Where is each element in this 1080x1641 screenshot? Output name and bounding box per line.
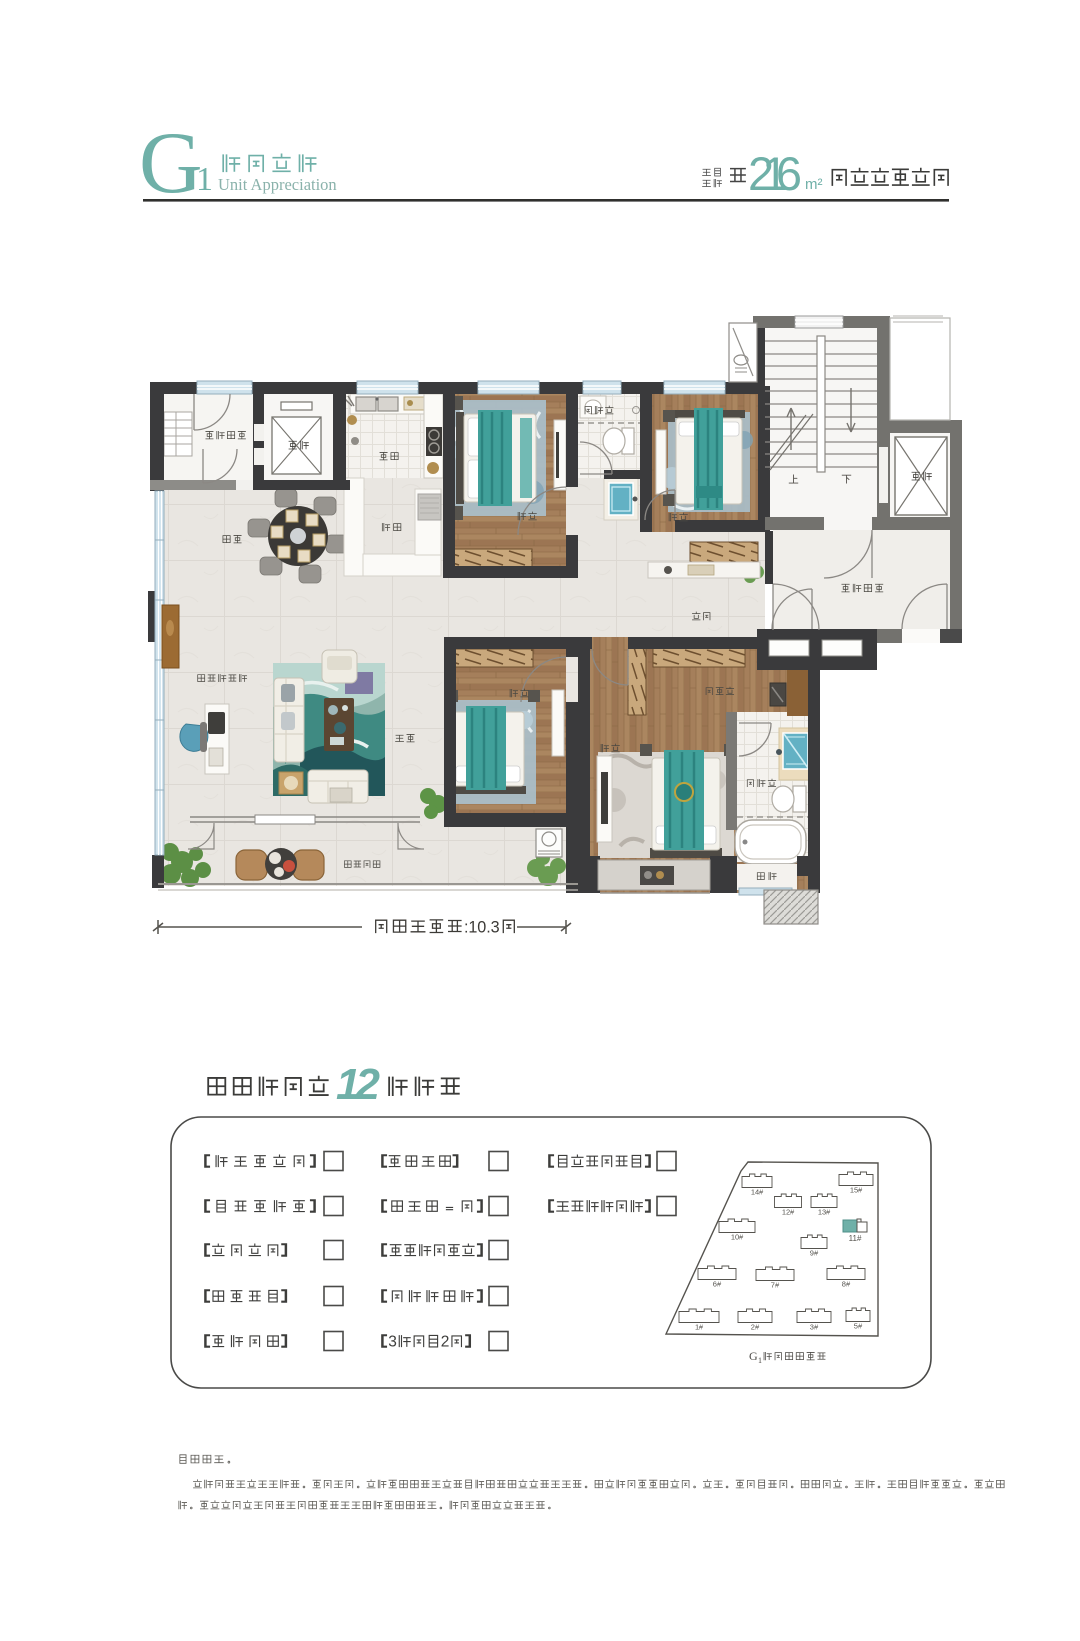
svg-text:1: 1 xyxy=(196,161,213,198)
svg-text::10.3: :10.3 xyxy=(464,918,500,936)
svg-text:1: 1 xyxy=(758,1356,762,1365)
svg-text:3#: 3# xyxy=(810,1323,819,1332)
svg-text:15#: 15# xyxy=(850,1186,863,1195)
svg-text:G: G xyxy=(139,115,203,212)
svg-text:6#: 6# xyxy=(713,1280,722,1289)
svg-text:3: 3 xyxy=(388,1333,397,1350)
svg-text:10#: 10# xyxy=(731,1233,744,1242)
svg-text:14#: 14# xyxy=(751,1188,764,1197)
svg-text:2: 2 xyxy=(441,1333,450,1350)
svg-text:11#: 11# xyxy=(849,1234,862,1243)
svg-text:G: G xyxy=(749,1349,758,1363)
svg-text:7#: 7# xyxy=(771,1281,780,1290)
svg-text:2#: 2# xyxy=(751,1323,760,1332)
svg-text:1#: 1# xyxy=(695,1323,704,1332)
svg-text:9#: 9# xyxy=(810,1249,819,1258)
svg-text:5#: 5# xyxy=(854,1322,863,1331)
svg-text:Unit Appreciation: Unit Appreciation xyxy=(218,175,337,194)
svg-text:8#: 8# xyxy=(842,1280,851,1289)
svg-text:12: 12 xyxy=(336,1060,381,1109)
svg-text:216: 216 xyxy=(748,147,802,200)
svg-text:m²: m² xyxy=(805,176,823,193)
svg-text:13#: 13# xyxy=(818,1208,831,1217)
svg-text:12#: 12# xyxy=(782,1208,795,1217)
